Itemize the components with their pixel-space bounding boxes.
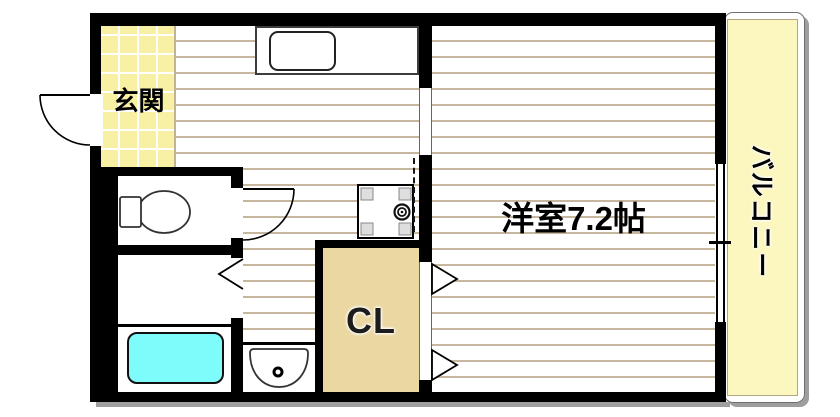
western-room-label: 洋室7.2帖 xyxy=(432,192,715,240)
toilet-icon xyxy=(120,191,190,233)
closet-folding-door-icon xyxy=(432,264,457,294)
washer-pan-detail-icon xyxy=(361,188,411,235)
entrance-door-icon xyxy=(40,95,90,145)
floor-plan: 玄関 洋室7.2帖 CL バルコニー xyxy=(0,0,840,417)
genkan-label: 玄関 xyxy=(101,81,176,118)
closet-label: CL xyxy=(323,300,419,342)
bath-folding-door-icon xyxy=(219,259,243,289)
balcony-label: バルコニー xyxy=(745,132,781,292)
washbasin-icon xyxy=(250,349,308,387)
toilet-door-icon xyxy=(243,189,294,240)
closet-folding-door-icon xyxy=(432,350,457,380)
